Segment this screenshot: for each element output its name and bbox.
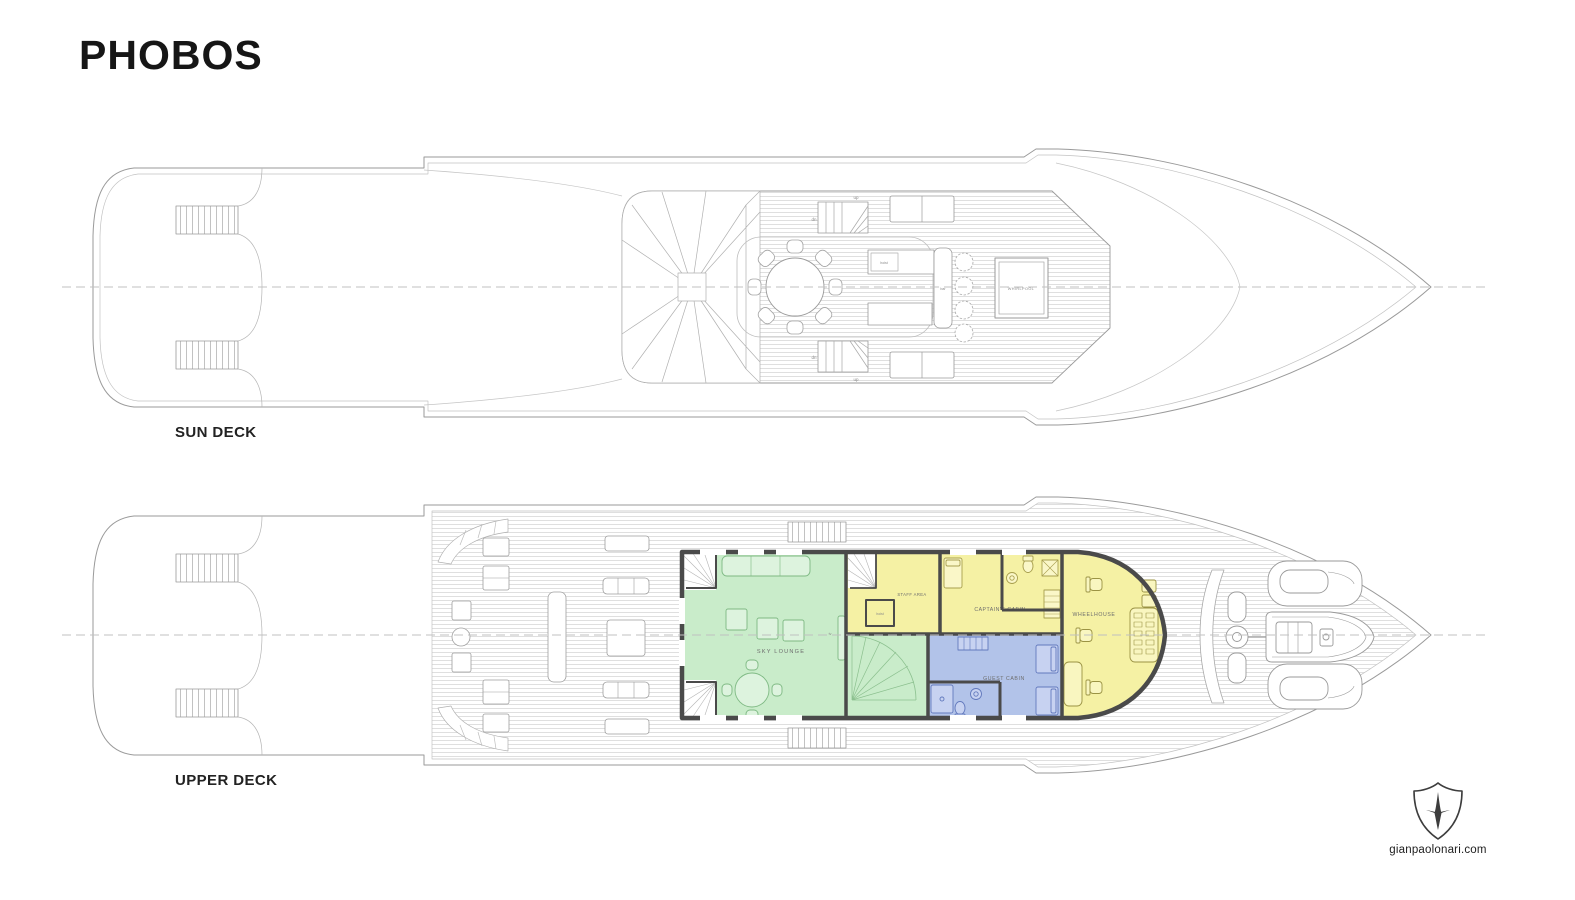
hoist-room-label: hoist <box>876 612 884 616</box>
website-text: gianpaolonari.com <box>1378 844 1498 856</box>
sun-deck-bar: bar <box>934 248 952 328</box>
deck-plans-drawing: up dn up dn hoist bar <box>0 0 1575 900</box>
jet-ski-port <box>1268 561 1362 606</box>
tender-boat <box>1266 612 1374 662</box>
wheelhouse-label: WHEELHOUSE <box>1073 612 1116 618</box>
stair-dn-label: dn <box>811 355 817 360</box>
tv-label: tv <box>829 632 832 636</box>
upper-deck-label: UPPER DECK <box>175 772 277 789</box>
yacht-deck-plan-page: PHOBOS <box>0 0 1575 900</box>
bar-label: bar <box>940 287 946 291</box>
hoist-label: hoist <box>880 261 888 265</box>
page-title: PHOBOS <box>79 32 263 79</box>
sun-deck-stern-stairs <box>176 168 262 407</box>
sky-lounge-label: SKY LOUNGE <box>757 649 805 655</box>
stair-dn-label: dn <box>811 217 817 222</box>
staff-area-label: STAFF AREA <box>897 592 926 597</box>
jet-ski-starboard <box>1268 664 1362 709</box>
upper-deck-stern-stairs <box>176 516 262 755</box>
credit-block: gianpaolonari.com <box>1378 780 1498 856</box>
whirlpool-label: WHIRLPOOL <box>1008 287 1034 291</box>
stair-up-label: up <box>853 377 859 382</box>
sun-deck-plan: up dn up dn hoist bar <box>62 149 1490 425</box>
upper-deck-plan: tv SKY LOUNGE hoist STAFF AREA <box>62 497 1490 773</box>
shield-star-icon <box>1406 780 1470 842</box>
stairwell-area <box>846 634 928 720</box>
stair-up-label: up <box>853 195 859 200</box>
sun-deck-label: SUN DECK <box>175 424 257 441</box>
sun-deck-whirlpool: WHIRLPOOL <box>995 258 1048 318</box>
